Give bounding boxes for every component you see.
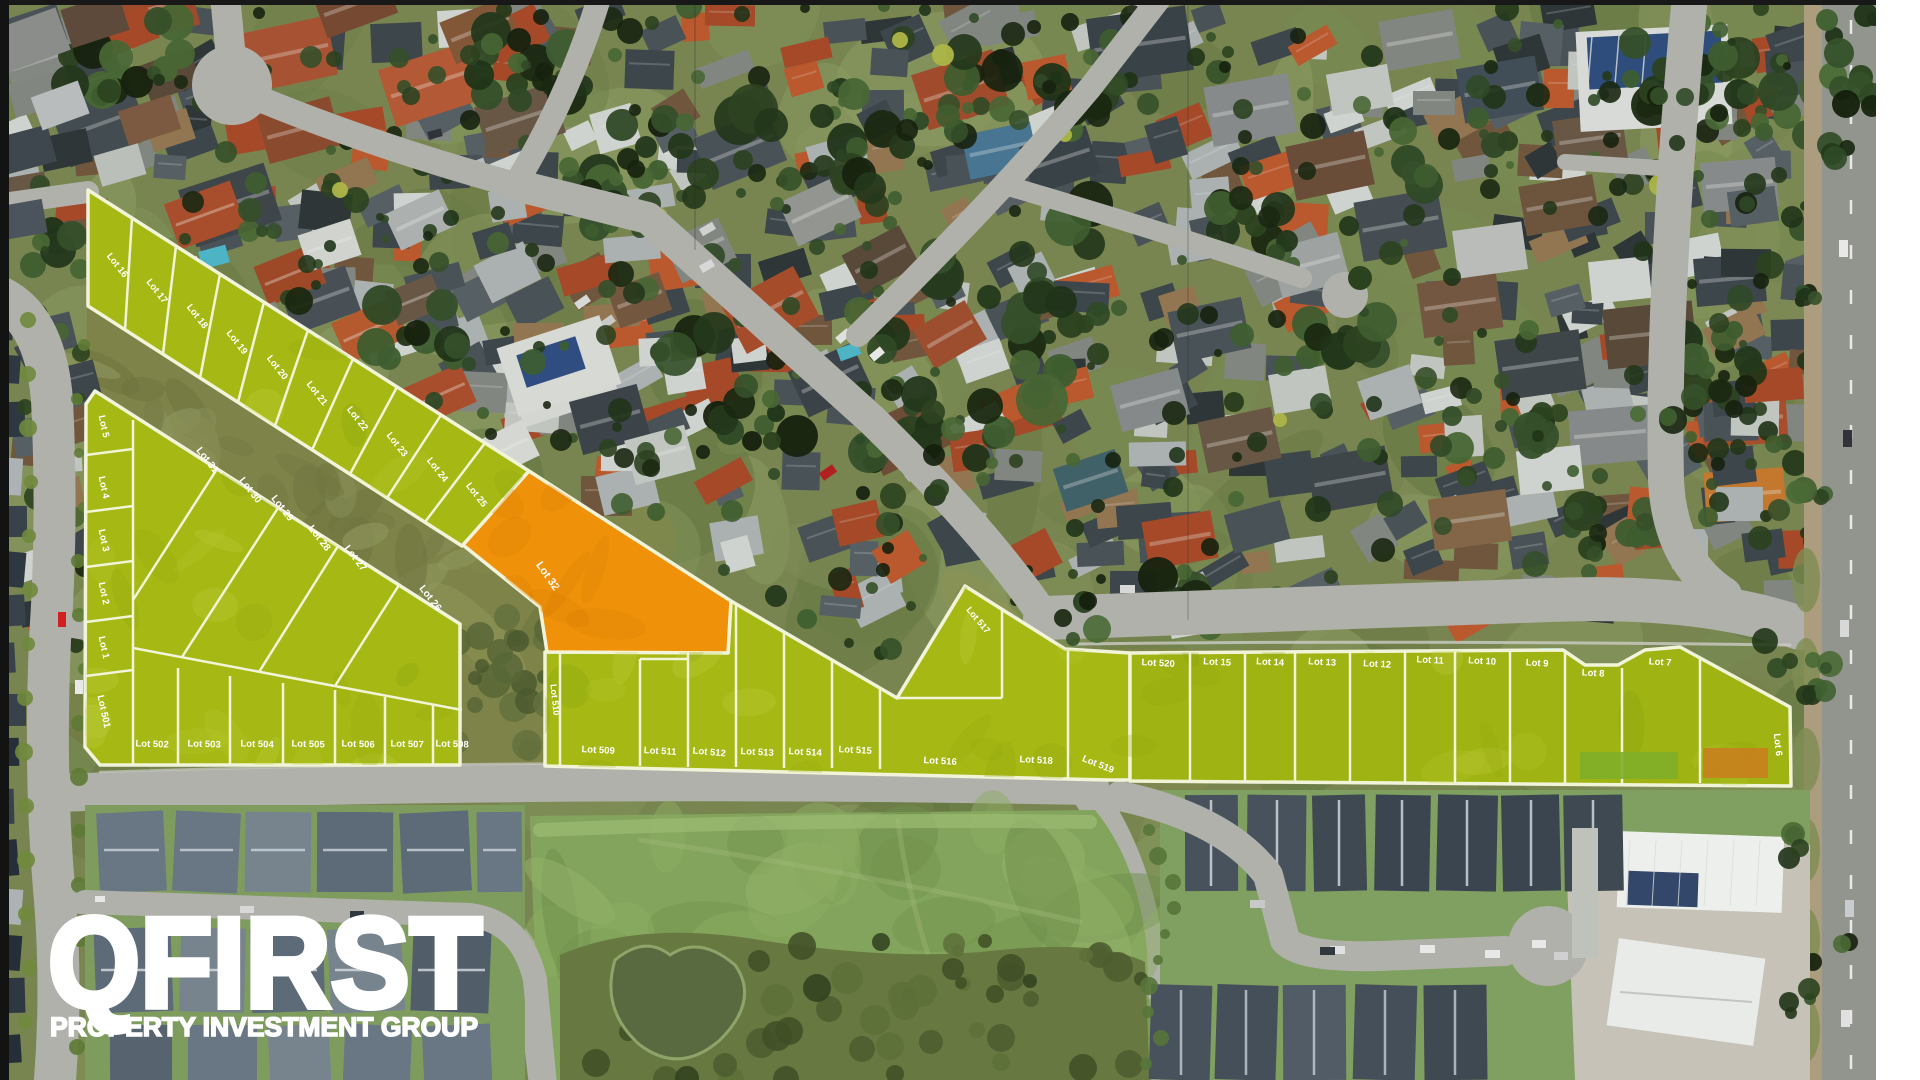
svg-text:Lot 8: Lot 8 <box>1582 667 1605 679</box>
svg-text:Lot 505: Lot 505 <box>291 738 325 750</box>
svg-text:Lot 502: Lot 502 <box>135 738 169 750</box>
svg-text:Lot 10: Lot 10 <box>1468 655 1497 667</box>
svg-text:Lot 508: Lot 508 <box>435 738 469 750</box>
svg-text:Lot 12: Lot 12 <box>1363 658 1392 670</box>
svg-text:PROPERTY INVESTMENT GROUP: PROPERTY INVESTMENT GROUP <box>50 1012 478 1042</box>
svg-text:Lot 11: Lot 11 <box>1416 654 1445 666</box>
svg-text:Lot 509: Lot 509 <box>581 744 615 757</box>
svg-text:Lot 511: Lot 511 <box>643 745 677 758</box>
svg-text:Lot 503: Lot 503 <box>187 738 221 750</box>
svg-text:Lot 15: Lot 15 <box>1203 656 1232 668</box>
svg-text:Lot 518: Lot 518 <box>1019 754 1053 767</box>
svg-text:Lot 520: Lot 520 <box>1141 657 1175 670</box>
svg-text:Lot 7: Lot 7 <box>1649 656 1672 668</box>
svg-text:Lot 507: Lot 507 <box>390 738 424 750</box>
svg-text:Lot 514: Lot 514 <box>788 746 823 759</box>
svg-text:Lot 516: Lot 516 <box>923 755 957 768</box>
svg-text:Lot 13: Lot 13 <box>1308 656 1337 668</box>
svg-text:Lot 504: Lot 504 <box>240 738 274 750</box>
svg-text:Lot 506: Lot 506 <box>341 738 375 750</box>
svg-text:Lot 515: Lot 515 <box>838 744 873 757</box>
svg-text:Lot 513: Lot 513 <box>740 746 774 759</box>
svg-text:Lot 14: Lot 14 <box>1256 656 1285 668</box>
svg-text:Lot 9: Lot 9 <box>1526 657 1549 669</box>
